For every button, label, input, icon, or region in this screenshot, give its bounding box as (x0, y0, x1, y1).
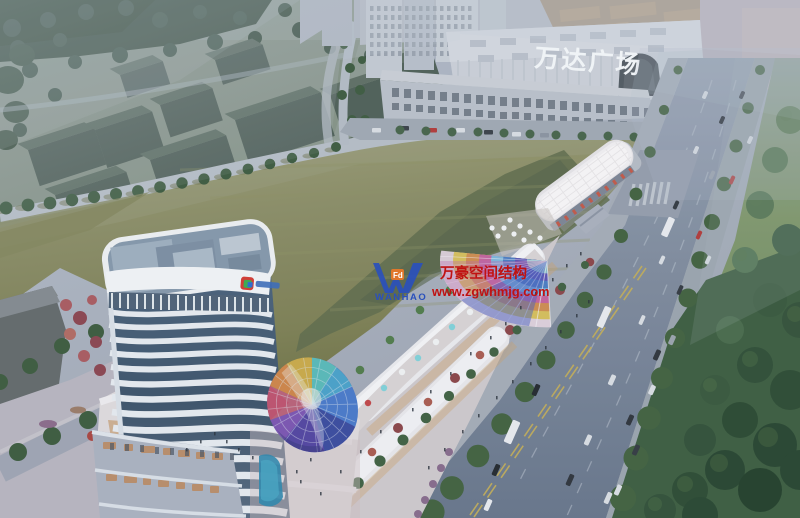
svg-text:Fd: Fd (393, 271, 403, 280)
svg-text:万豪空间结构: 万豪空间结构 (439, 264, 527, 282)
svg-text:www.zgwhmjg.com: www.zgwhmjg.com (431, 284, 550, 299)
svg-text:WANHAO: WANHAO (375, 292, 427, 303)
